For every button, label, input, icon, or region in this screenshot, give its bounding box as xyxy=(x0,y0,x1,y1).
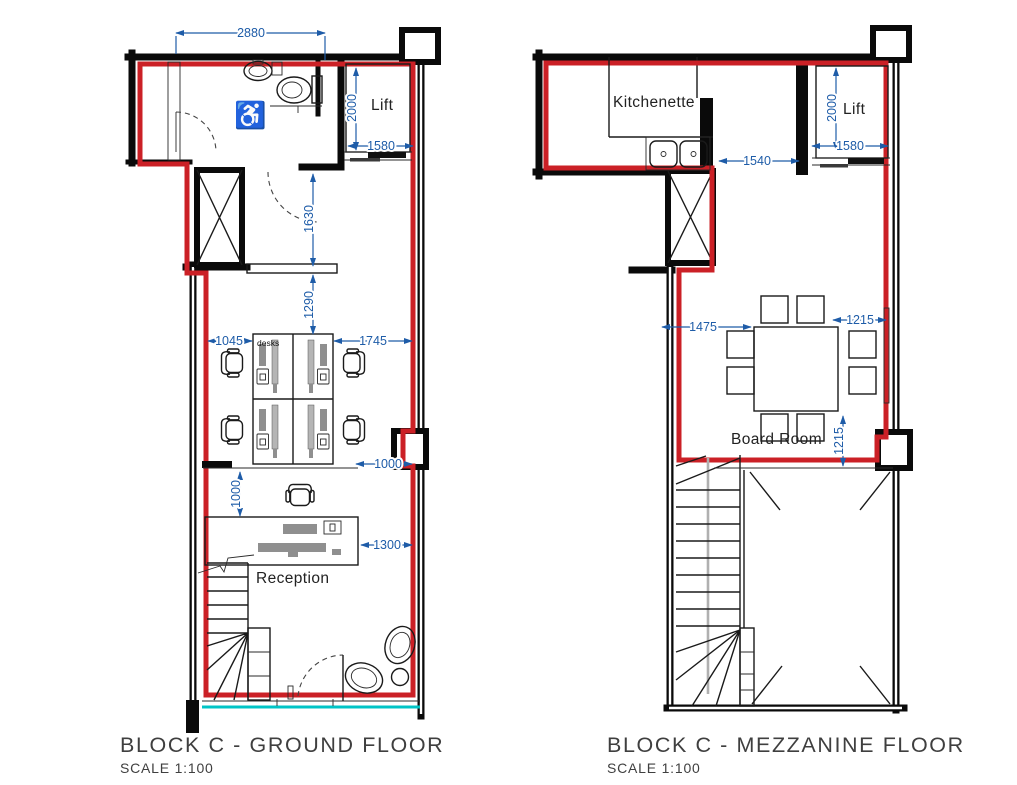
dim-table-to-wall: 1215 xyxy=(846,313,874,327)
ground-walls xyxy=(128,30,438,733)
ground-floor-scale: SCALE 1:100 xyxy=(120,760,214,776)
ground-floor-title: BLOCK C - GROUND FLOOR xyxy=(120,733,444,757)
floor-plan-sheet: ♿ Lift desks xyxy=(0,0,1017,785)
ground-desks: desks xyxy=(221,334,364,464)
mezzanine-floor-title: BLOCK C - MEZZANINE FLOOR xyxy=(607,733,965,757)
double-sink xyxy=(650,141,707,167)
counter xyxy=(247,264,337,273)
mezzanine-floor-plan: Kitchenette Lift Board Room xyxy=(536,28,965,776)
office-chair xyxy=(221,416,242,444)
mezzanine-walls xyxy=(536,28,910,710)
room-label-lift: Lift xyxy=(371,97,394,114)
dim-desks-to-reception: 1000 xyxy=(374,457,402,471)
dim-top-width: 2880 xyxy=(237,26,265,40)
office-chair xyxy=(221,349,242,377)
dim-desks-to-wall: 1745 xyxy=(359,334,387,348)
board-table xyxy=(754,327,838,411)
dim-wall-to-table: 1475 xyxy=(689,320,717,334)
mezzanine-void xyxy=(714,468,893,704)
room-label-lift: Lift xyxy=(843,101,866,118)
floor-plan-drawing: ♿ Lift desks xyxy=(0,0,1017,785)
ground-shaft xyxy=(197,170,242,265)
ground-glazing xyxy=(202,699,420,707)
dim-lift-depth: 2000 xyxy=(345,94,359,122)
room-label-reception: Reception xyxy=(256,570,329,587)
dim-table-to-wall-below: 1215 xyxy=(832,427,846,455)
mezzanine-shaft xyxy=(668,171,713,263)
dim-corridor-width: 1540 xyxy=(743,154,771,168)
column xyxy=(402,30,438,62)
ground-bathroom: ♿ xyxy=(168,60,322,160)
side-table xyxy=(392,669,409,686)
ground-floor-plan: ♿ Lift desks xyxy=(120,26,444,776)
toilet xyxy=(270,76,322,113)
office-chair xyxy=(344,416,365,444)
mezzanine-stairs xyxy=(676,455,754,706)
dim-hall-length: 1290 xyxy=(302,291,316,319)
dim-reception-clearance: 1000 xyxy=(229,480,243,508)
dim-lift-depth: 2000 xyxy=(825,94,839,122)
dim-lobby-length: 1630 xyxy=(302,205,316,233)
mezzanine-dimensions: 2000 1580 1540 1475 1215 1215 xyxy=(662,68,888,466)
room-label-board-room: Board Room xyxy=(731,431,822,448)
mezzanine-floor-scale: SCALE 1:100 xyxy=(607,760,701,776)
office-chair xyxy=(344,349,365,377)
ground-lounge-chairs xyxy=(341,622,420,698)
cabinet xyxy=(168,62,180,160)
dim-reception-desk-width: 1300 xyxy=(373,538,401,552)
room-label-kitchenette: Kitchenette xyxy=(613,94,695,111)
desks-label: desks xyxy=(257,338,279,348)
dim-lift-width: 1580 xyxy=(367,139,395,153)
office-chair xyxy=(286,484,314,505)
dim-wall-to-desks: 1045 xyxy=(215,334,243,348)
column xyxy=(873,28,909,60)
dim-lift-width: 1580 xyxy=(836,139,864,153)
door-swing xyxy=(176,112,216,152)
wheelchair-accessible-icon: ♿ xyxy=(234,100,266,130)
